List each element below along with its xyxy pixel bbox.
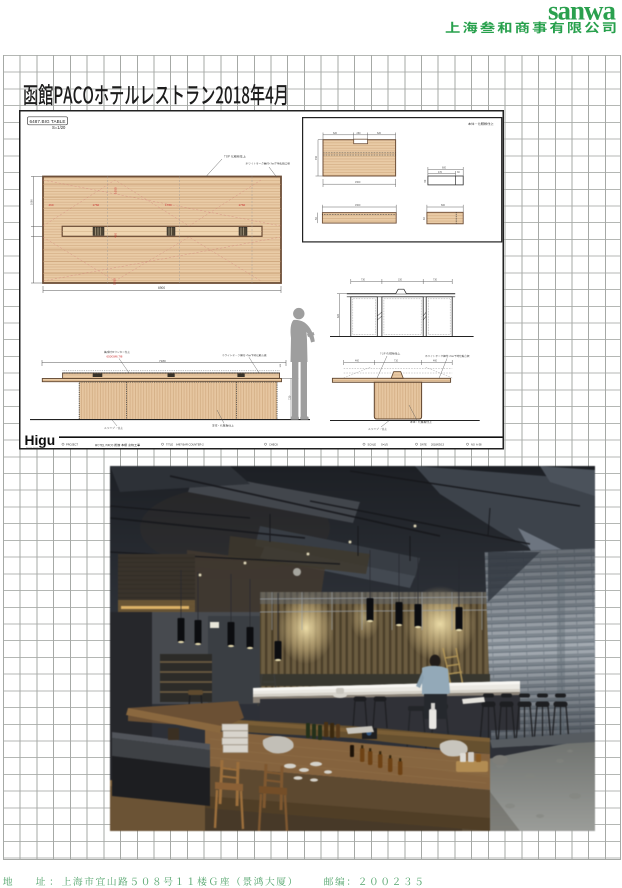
svg-text:S=1/5: S=1/5: [381, 442, 388, 446]
svg-text:720: 720: [287, 395, 291, 400]
svg-text:620: 620: [337, 313, 340, 318]
svg-text:730: 730: [433, 279, 438, 282]
svg-text:6900: 6900: [158, 286, 165, 290]
svg-text:460: 460: [49, 203, 54, 207]
svg-text:1760: 1760: [239, 203, 246, 207]
svg-text:7180: 7180: [159, 359, 166, 363]
svg-text:710: 710: [394, 360, 399, 363]
svg-text:620: 620: [377, 132, 382, 135]
svg-text:1060: 1060: [30, 199, 34, 205]
svg-text:SCALE: SCALE: [368, 442, 377, 446]
svg-text:DATE: DATE: [420, 442, 427, 446]
svg-text:Higu: Higu: [25, 433, 56, 448]
svg-text:A-38: A-38: [476, 442, 482, 446]
svg-text:6487 BAR COUNTER-2: 6487 BAR COUNTER-2: [176, 442, 204, 446]
svg-text:Interior design office: Interior design office: [26, 446, 45, 449]
svg-text:1500: 1500: [355, 204, 361, 207]
svg-text:470: 470: [438, 171, 443, 174]
svg-text:600: 600: [441, 204, 446, 207]
svg-text:600: 600: [442, 167, 447, 170]
svg-text:650GM6.7f8: 650GM6.7f8: [107, 355, 123, 359]
svg-text:1650: 1650: [113, 278, 117, 285]
svg-text:620: 620: [333, 132, 338, 135]
svg-text:1760: 1760: [93, 203, 100, 207]
svg-text:6487.BIG TABLE: 6487.BIG TABLE: [30, 119, 66, 124]
svg-text:460: 460: [114, 233, 118, 238]
svg-text:sanwa: sanwa: [548, 0, 617, 26]
svg-text:2018/03/13: 2018/03/13: [431, 442, 445, 446]
svg-text:450: 450: [315, 155, 318, 160]
svg-text:CHECK: CHECK: [269, 442, 278, 446]
svg-text:730: 730: [361, 279, 366, 282]
svg-text:1760: 1760: [165, 203, 172, 207]
svg-text:PROJECT: PROJECT: [66, 442, 79, 446]
svg-text:460: 460: [355, 360, 360, 363]
svg-text:260: 260: [357, 132, 362, 135]
svg-text:TITLE: TITLE: [166, 442, 173, 446]
svg-text:NO: NO: [471, 442, 475, 446]
svg-text:150: 150: [398, 279, 403, 282]
svg-text:460: 460: [433, 360, 438, 363]
svg-text:1650: 1650: [114, 187, 118, 194]
svg-text:S=1/20: S=1/20: [52, 125, 66, 130]
svg-text:1500: 1500: [355, 181, 361, 184]
